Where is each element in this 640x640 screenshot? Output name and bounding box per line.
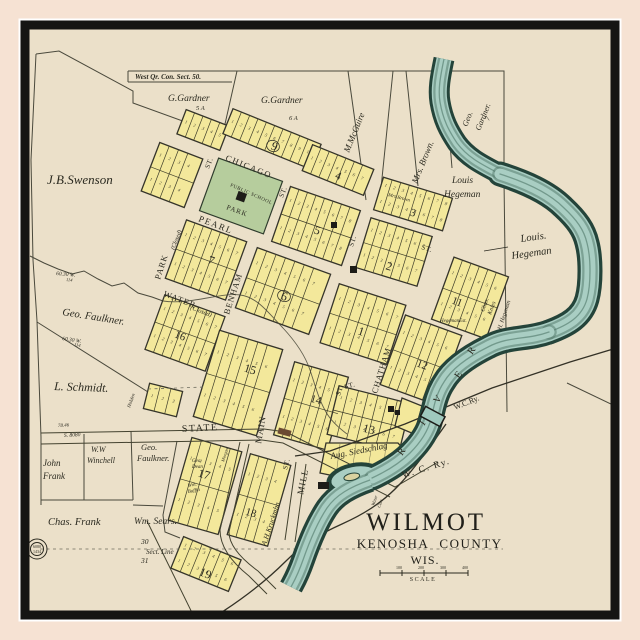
svg-text:G.Gardner: G.Gardner xyxy=(168,94,210,104)
svg-text:30: 30 xyxy=(140,537,149,546)
svg-text:Hegeman: Hegeman xyxy=(443,190,481,200)
svg-text:WIS.: WIS. xyxy=(411,553,440,567)
svg-text:400: 400 xyxy=(462,565,468,570)
svg-text:Geo.: Geo. xyxy=(192,459,202,464)
svg-text:HegemanEst.: HegemanEst. xyxy=(439,319,467,324)
svg-text:SCALE: SCALE xyxy=(410,577,437,583)
svg-text:Louis: Louis xyxy=(451,176,473,186)
svg-text:John: John xyxy=(43,458,61,468)
svg-text:Faulkner.: Faulkner. xyxy=(136,453,169,463)
svg-text:300: 300 xyxy=(440,565,446,570)
svg-text:Chas. Frank: Chas. Frank xyxy=(48,517,101,528)
svg-text:31: 31 xyxy=(140,556,149,565)
svg-text:J.B.Swenson: J.B.Swenson xyxy=(47,172,113,187)
svg-text:COUNTY: COUNTY xyxy=(439,536,502,551)
svg-text:Wm. Sears.: Wm. Sears. xyxy=(134,517,177,527)
svg-text:S. 8080: S. 8080 xyxy=(64,432,81,439)
svg-text:Sect. Line: Sect. Line xyxy=(146,548,174,556)
svg-text:Dean: Dean xyxy=(191,465,203,470)
svg-text:STATE: STATE xyxy=(182,422,219,435)
svg-text:1434: 1434 xyxy=(33,549,41,554)
svg-text:WILMOT: WILMOT xyxy=(366,509,486,536)
svg-text:Winchell: Winchell xyxy=(87,456,116,465)
svg-text:114: 114 xyxy=(66,277,74,283)
svg-text:5 A: 5 A xyxy=(196,105,205,112)
svg-text:6 A: 6 A xyxy=(289,115,298,122)
svg-text:West Qr. Con. Sect. 50.: West Qr. Con. Sect. 50. xyxy=(135,73,201,81)
svg-text:KENOSHA: KENOSHA xyxy=(357,536,430,551)
svg-text:78.46: 78.46 xyxy=(58,423,70,429)
svg-text:Geo.: Geo. xyxy=(141,442,157,452)
svg-text:L. Schmidt.: L. Schmidt. xyxy=(53,379,109,395)
svg-text:200: 200 xyxy=(418,565,424,570)
svg-text:W.W: W.W xyxy=(91,445,107,454)
svg-text:G.Gardner: G.Gardner xyxy=(261,96,303,106)
svg-text:100: 100 xyxy=(396,565,402,570)
svg-text:Frank: Frank xyxy=(42,471,66,481)
